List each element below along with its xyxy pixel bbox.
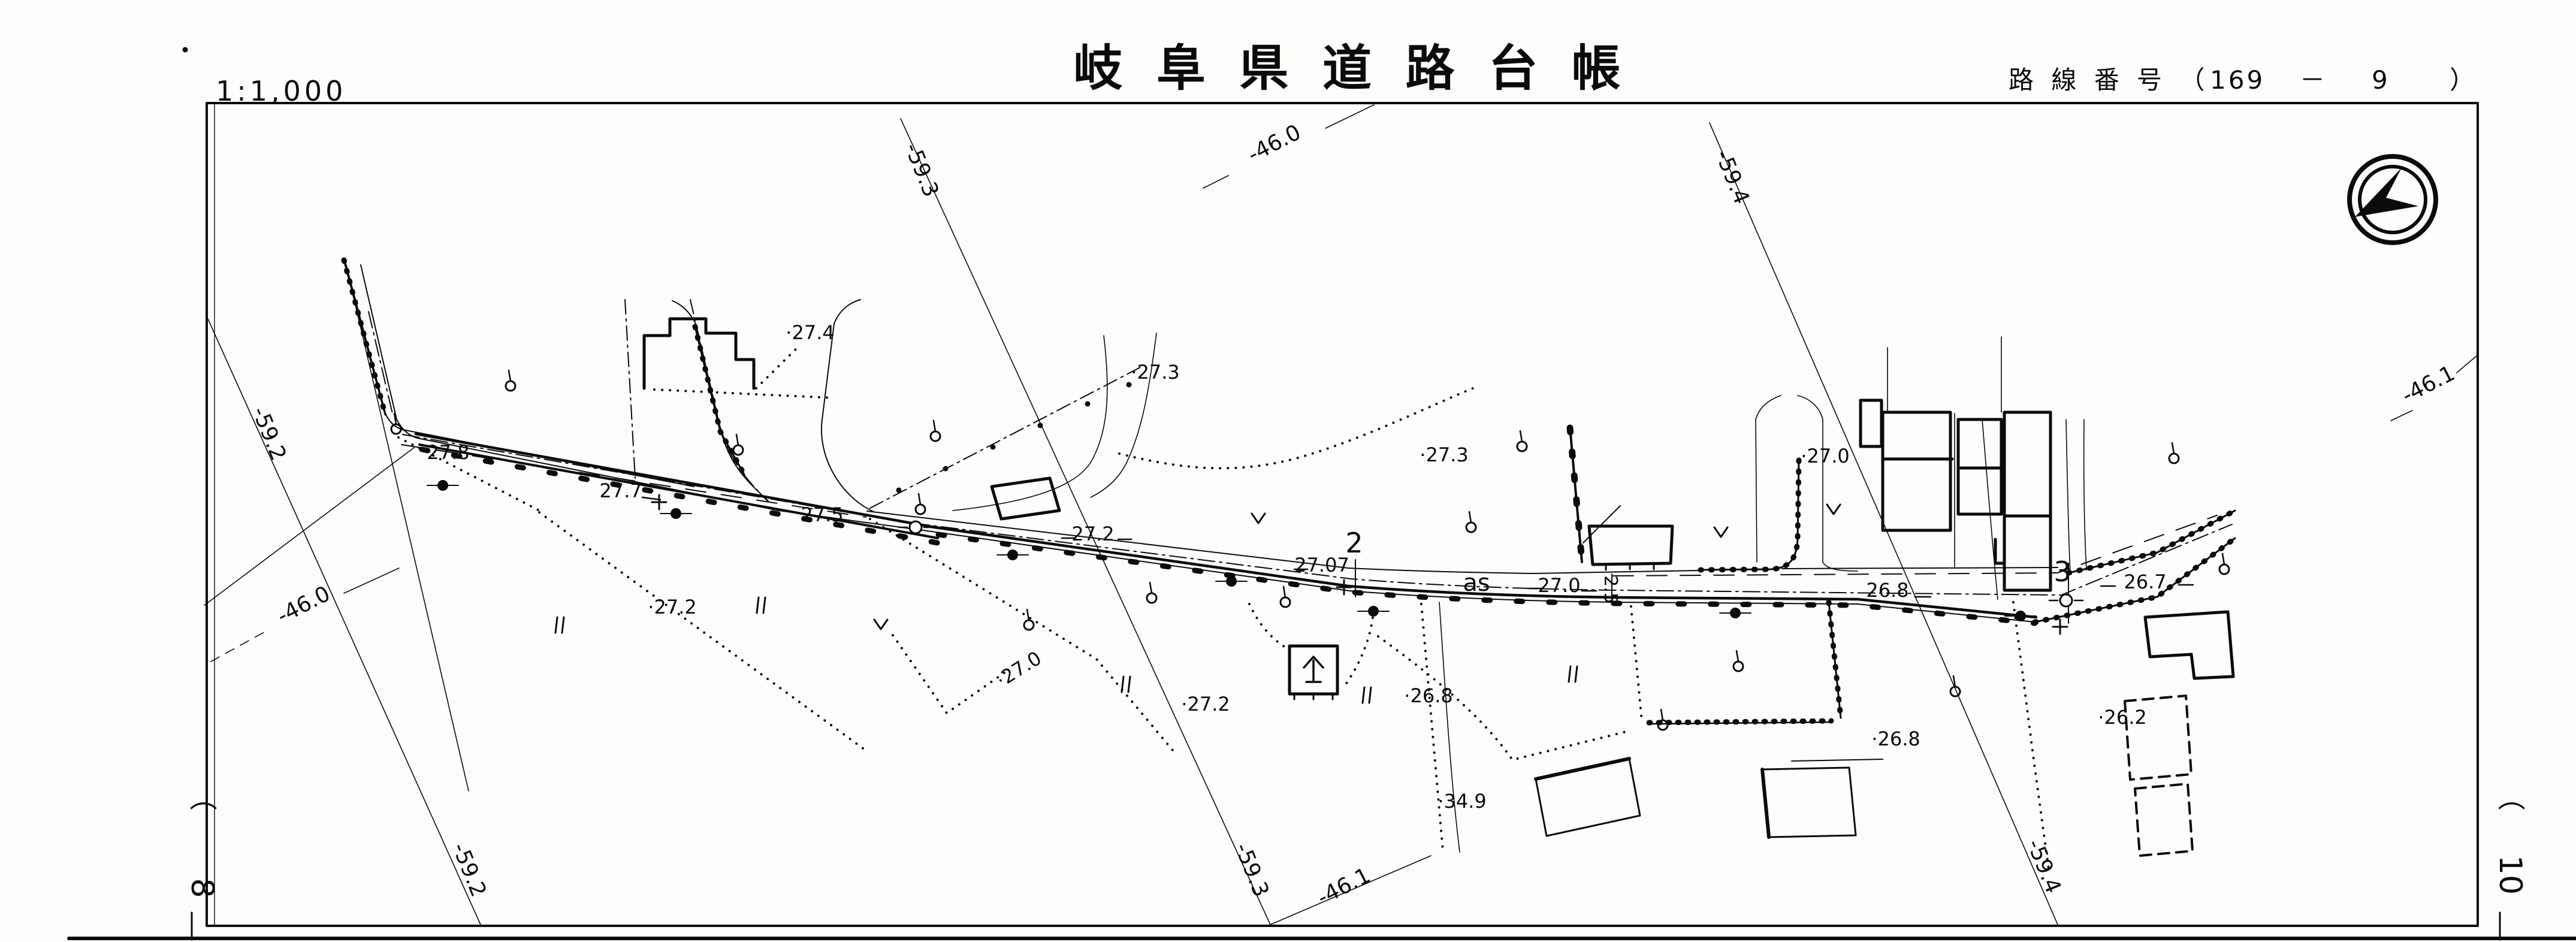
route-number-block: 路 線 番 号 （ 169 － 9 ） <box>2009 65 2475 95</box>
grid-coordinate-label: -59.4 <box>1710 147 1754 208</box>
grass-symbol <box>1252 514 1265 523</box>
route-dash: － <box>2300 65 2325 95</box>
road-ledger-sheet: 1:1,000 岐 阜 県 道 路 台 帳 路 線 番 号 （ 169 － 9 … <box>0 0 2576 942</box>
pole-stem <box>1284 587 1285 597</box>
grid-coordinate-label: -46.1 <box>1313 863 1375 910</box>
grid-coordinate-label: -59.3 <box>1230 840 1273 901</box>
pole-stem <box>919 494 920 505</box>
boundary-dot <box>990 445 996 450</box>
buildings <box>644 319 2233 856</box>
building-shrine <box>1289 646 1337 699</box>
pole-circle-icon <box>506 381 515 391</box>
grid-coordinate-label: -46.0 <box>273 581 334 629</box>
dotted-boundaries <box>398 345 2049 874</box>
route-number: 169 <box>2210 65 2265 95</box>
pole-circle-icon <box>1466 523 1476 532</box>
road-annotation-label: 2.5 <box>1600 575 1621 604</box>
plus-mark <box>2053 620 2067 634</box>
pole-circle-icon <box>931 431 940 441</box>
plus-mark <box>652 495 666 509</box>
pole-circle-icon <box>733 445 743 455</box>
pole-circle-icon <box>1517 442 1527 451</box>
pole-stem <box>1027 609 1029 620</box>
pole-stem <box>1150 582 1152 593</box>
pole-stem <box>2222 554 2224 564</box>
grid-coordinate-label: -59.4 <box>2022 836 2065 897</box>
pole-stem <box>2172 443 2174 454</box>
paddy-symbol <box>555 617 564 633</box>
grass-symbol <box>874 620 887 629</box>
road-annotation-label: 27.8 <box>427 441 469 464</box>
boundary-dot <box>1085 401 1091 407</box>
route-label: 路 線 番 号 （ <box>2009 65 2209 95</box>
pole-circle-icon <box>1734 662 1743 671</box>
spot-elevation-label: ·27.2 <box>1181 693 1230 715</box>
grid-coordinate-label: -59.3 <box>899 140 943 201</box>
road-annotation-label: as <box>1463 569 1490 597</box>
pole-circle-icon <box>1147 593 1156 603</box>
building-cluster-east <box>1861 400 2050 590</box>
pole-stem <box>736 434 738 445</box>
grid-coordinate-label: -59.2 <box>447 840 491 901</box>
road-annotation-label: 27.5 <box>801 503 843 526</box>
branch-road <box>672 300 874 512</box>
paddy-symbol <box>1569 666 1577 682</box>
pole-stem <box>1661 709 1663 720</box>
road-annotation-label: 26.8 <box>1866 579 1908 602</box>
sheet-margin-label: （ <box>186 783 219 811</box>
spot-elevation-label: ·27.0 <box>992 647 1046 692</box>
sheet-margin-label: 10 <box>2492 855 2528 895</box>
spot-elevation-label: ·26.8 <box>1871 727 1920 750</box>
spot-elevation-label: ·27.3 <box>1420 443 1468 466</box>
sheet-margin-label: 8 <box>184 878 220 898</box>
paddy-symbol <box>757 597 765 613</box>
north-arrow-icon <box>2349 156 2436 243</box>
grass-symbol-icons <box>874 505 1840 629</box>
spot-elevation-label: ·26.2 <box>2098 706 2146 729</box>
spot-elevation-label: ·34.9 <box>1438 790 1486 813</box>
building-south-road <box>2145 612 2233 678</box>
utility-pole-icons <box>391 370 2229 730</box>
spot-elevation-label: ·27.3 <box>1131 361 1179 384</box>
page-title: 岐 阜 県 道 路 台 帳 <box>1073 40 1629 97</box>
spot-elevation-label: ·27.2 <box>648 596 696 618</box>
station-circle <box>910 521 922 533</box>
pole-circle-icon <box>1281 597 1290 607</box>
pole-stem <box>1469 512 1471 523</box>
grass-symbol <box>1714 527 1728 537</box>
sheet-margin-label: （ <box>2495 783 2527 811</box>
station-circle <box>2060 594 2072 606</box>
road-annotation-label: 2 <box>1345 527 1363 559</box>
road-annotation-label: 27.7 <box>599 479 642 502</box>
pole-circle-icon <box>916 505 925 514</box>
map-frame <box>69 103 2576 940</box>
plus-mark <box>1337 580 1351 594</box>
road-annotation-label: 3 <box>2053 555 2071 588</box>
boundary-dot <box>1127 382 1132 388</box>
pole-circle-icon <box>2169 454 2179 463</box>
grid-coordinate-label: -59.2 <box>247 403 291 464</box>
pole-stem <box>1737 651 1738 662</box>
pole-circle-icon <box>2219 564 2229 574</box>
spot-elevation-label: ·27.0 <box>1801 445 1849 467</box>
boundary-dot <box>896 488 902 493</box>
boundary-dot <box>183 47 188 53</box>
road-annotation-label: 27.0 <box>1538 574 1580 597</box>
building-compound-west <box>1570 427 1672 570</box>
road-annotation-label: 26.7 <box>2124 570 2166 593</box>
spot-elevation-label: ·26.8 <box>1404 684 1452 707</box>
grass-symbol <box>1827 505 1840 514</box>
road-ledger-map: 1:1,000 岐 阜 県 道 路 台 帳 路 線 番 号 （ 169 － 9 … <box>0 0 2576 942</box>
boundary-point-dots <box>183 47 1132 493</box>
route-branch: 9 <box>2372 65 2388 95</box>
road-annotation-label: 27.2 <box>1071 523 1114 545</box>
pole-stem <box>934 421 935 431</box>
pole-stem <box>509 370 511 381</box>
grid-coordinate-label: -46.0 <box>1244 120 1305 167</box>
spot-elevation-label: ·27.4 <box>786 321 834 344</box>
boundary-dot <box>943 466 949 472</box>
pole-circle-icon <box>1024 620 1034 630</box>
grid-label-layer: -59.3-46.0-59.4-59.2-46.0-46.1-59.2-59.3… <box>247 120 2459 910</box>
greenhouses <box>1536 759 1883 837</box>
dash-dot-boundaries <box>625 300 1141 508</box>
route-paren-close: ） <box>2450 65 2475 95</box>
paddy-symbol <box>1363 687 1371 703</box>
pole-stem <box>1520 431 1522 442</box>
grid-coordinate-label: -46.1 <box>2398 361 2459 408</box>
boundary-dot <box>1038 423 1043 428</box>
building-stepped <box>644 319 754 388</box>
road-annotation-label: 27.07 <box>1294 554 1349 576</box>
spot-elevation-layer: ·27.4·27.3·27.2·27.0·27.2·27.3·27.0·26.8… <box>648 321 2146 813</box>
